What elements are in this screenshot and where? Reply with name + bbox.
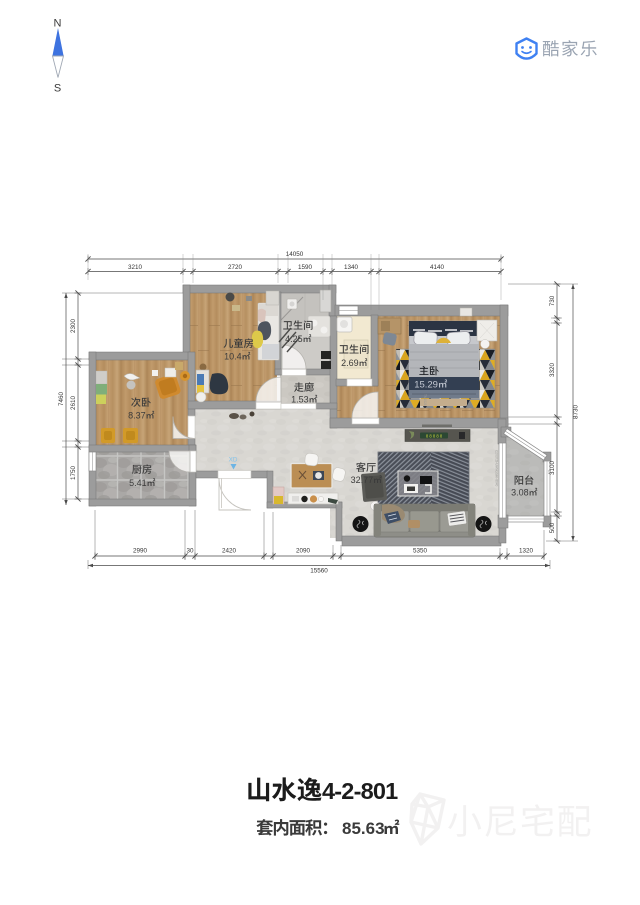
svg-text:14050: 14050: [286, 251, 304, 258]
svg-text:2720: 2720: [228, 264, 243, 271]
svg-text:4.25: 4.25: [285, 334, 303, 344]
svg-text:3100: 3100: [549, 461, 556, 476]
svg-text:1590: 1590: [298, 264, 313, 271]
svg-text:5.41: 5.41: [129, 478, 147, 488]
svg-text:15.29: 15.29: [414, 380, 438, 391]
svg-text:1340: 1340: [344, 264, 359, 271]
svg-text:XD: XD: [229, 457, 238, 464]
svg-text:TM1021: TM1021: [423, 394, 427, 406]
svg-text:C2037ZHUANGSHI-8040: C2037ZHUANGSHI-8040: [495, 450, 499, 487]
svg-text:4140: 4140: [430, 264, 445, 271]
svg-text:2300: 2300: [70, 319, 77, 334]
svg-text:85.63: 85.63: [342, 819, 385, 838]
svg-text:8 8 8 8 8: 8 8 8 8 8: [426, 434, 443, 439]
svg-text:10.4: 10.4: [224, 352, 242, 362]
svg-text:8730: 8730: [573, 405, 580, 420]
svg-text:3.08: 3.08: [511, 488, 529, 498]
svg-text:3320: 3320: [549, 363, 556, 378]
svg-text:S: S: [54, 83, 61, 95]
svg-text:1750: 1750: [70, 466, 77, 481]
svg-text:2.69: 2.69: [341, 358, 359, 368]
svg-text:2420: 2420: [222, 548, 237, 555]
svg-text:7460: 7460: [58, 392, 65, 407]
svg-text:2090: 2090: [296, 548, 311, 555]
svg-text:15560: 15560: [310, 568, 328, 575]
svg-text:32.77: 32.77: [351, 475, 374, 485]
svg-text:1320: 1320: [519, 548, 534, 555]
svg-text:30: 30: [186, 548, 194, 555]
svg-text:2610: 2610: [70, 396, 77, 411]
svg-text:4-2-801: 4-2-801: [322, 778, 398, 804]
svg-text:500: 500: [549, 522, 556, 533]
svg-text:1.53: 1.53: [291, 395, 309, 405]
svg-text:8.37: 8.37: [128, 411, 146, 421]
svg-text:2990: 2990: [133, 548, 148, 555]
svg-text:5350: 5350: [413, 548, 428, 555]
svg-text:730: 730: [549, 295, 556, 306]
svg-text:3210: 3210: [128, 264, 143, 271]
svg-text:N: N: [54, 18, 62, 30]
